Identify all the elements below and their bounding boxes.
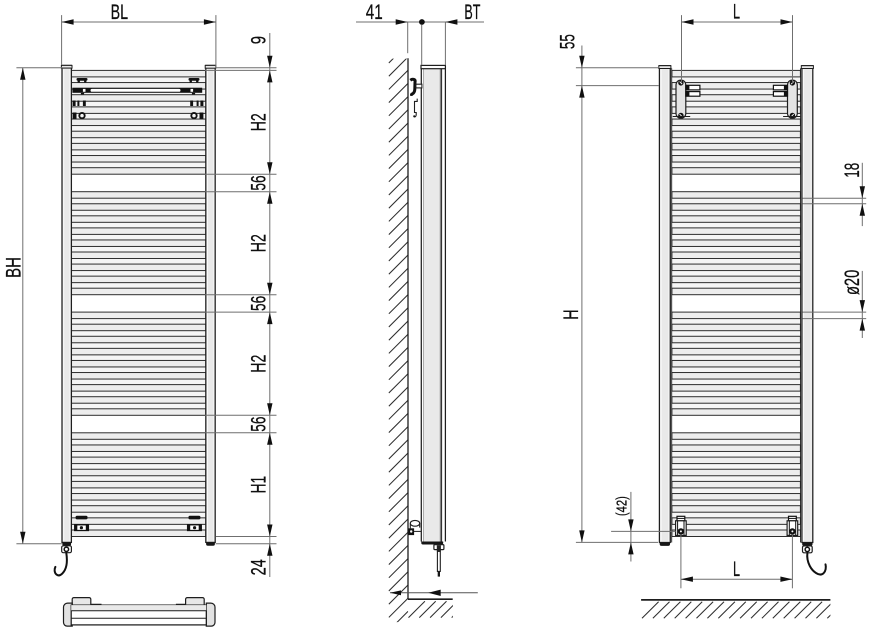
svg-text:H2: H2 xyxy=(247,113,270,131)
svg-text:18: 18 xyxy=(841,163,864,178)
svg-text:9: 9 xyxy=(247,36,270,44)
svg-text:L: L xyxy=(733,558,740,581)
svg-text:55: 55 xyxy=(557,34,580,49)
svg-text:41: 41 xyxy=(366,1,383,24)
svg-text:56: 56 xyxy=(247,296,270,311)
svg-text:56: 56 xyxy=(247,175,270,190)
svg-text:H1: H1 xyxy=(247,476,270,494)
svg-text:BT: BT xyxy=(464,1,480,24)
svg-text:24: 24 xyxy=(247,559,270,575)
svg-text:BH: BH xyxy=(2,257,25,278)
svg-text:H2: H2 xyxy=(247,234,270,252)
svg-text:L: L xyxy=(733,0,740,23)
svg-text:ø20: ø20 xyxy=(841,270,864,295)
svg-text:H2: H2 xyxy=(247,355,270,373)
svg-text:BL: BL xyxy=(111,1,128,24)
svg-text:(42): (42) xyxy=(613,496,630,516)
svg-text:H: H xyxy=(560,309,583,319)
svg-text:56: 56 xyxy=(247,417,270,432)
